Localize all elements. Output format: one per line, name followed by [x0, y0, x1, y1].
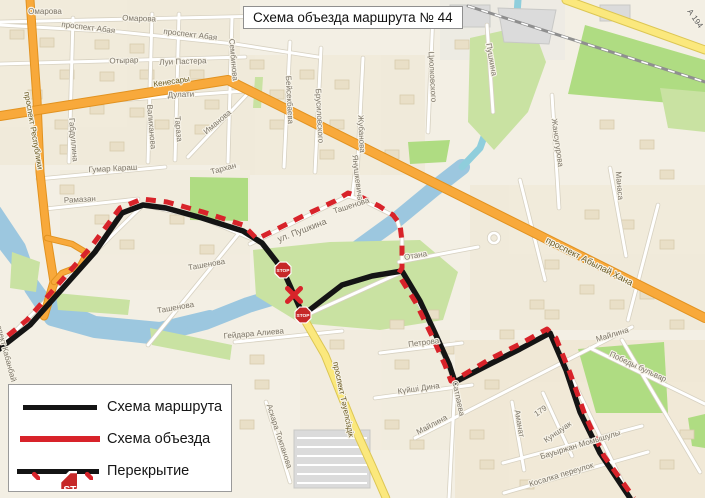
building	[670, 320, 684, 329]
building	[455, 40, 469, 49]
street-label: Луи Пастера	[159, 56, 207, 67]
building	[270, 120, 284, 129]
building	[385, 420, 399, 429]
building	[600, 120, 614, 129]
building	[205, 100, 219, 109]
building	[585, 210, 599, 219]
legend-label-closure: Перекрытие	[107, 463, 189, 479]
building	[500, 330, 514, 339]
building	[240, 420, 254, 429]
building	[660, 170, 674, 179]
building	[330, 340, 344, 349]
park	[408, 140, 450, 164]
building	[335, 80, 349, 89]
map-title-text: Схема объезда маршрута № 44	[253, 10, 453, 25]
building	[545, 310, 559, 319]
building	[400, 95, 414, 104]
building	[610, 300, 624, 309]
stop-sign-icon	[275, 262, 291, 278]
building	[60, 185, 74, 194]
street-label: Отырар	[109, 55, 139, 65]
building	[250, 355, 264, 364]
building	[470, 430, 484, 439]
legend-label-route: Схема маршрута	[107, 399, 222, 415]
closure-x-icon	[22, 462, 40, 480]
building	[480, 460, 494, 469]
building	[640, 140, 654, 149]
legend-label-detour: Схема объезда	[107, 431, 210, 447]
building	[660, 240, 674, 249]
building	[660, 460, 674, 469]
building	[320, 150, 334, 159]
closure-sample	[13, 455, 107, 487]
building	[390, 320, 404, 329]
screenshot-root: { "title": {"text": "Схема объезда маршр…	[0, 0, 705, 498]
building	[545, 260, 559, 269]
building	[40, 38, 54, 47]
legend-item-detour: Схема объезда	[13, 423, 227, 455]
building	[95, 40, 109, 49]
legend-item-route: Схема маршрута	[13, 391, 227, 423]
detour-line-sample	[13, 436, 107, 442]
building	[100, 72, 114, 81]
street-label: Омарова	[122, 13, 157, 23]
closure-x-icon	[75, 462, 93, 480]
building	[255, 380, 269, 389]
building	[395, 360, 409, 369]
building	[580, 285, 594, 294]
street-label: Омарова	[28, 7, 62, 16]
map-title: Схема объезда маршрута № 44	[243, 6, 463, 29]
building	[110, 142, 124, 151]
street-label: Рамазан	[64, 194, 96, 205]
legend-item-closure: Перекрытие	[13, 455, 227, 487]
building	[485, 380, 499, 389]
building	[130, 108, 144, 117]
building	[200, 245, 214, 254]
stop-sign-icon	[295, 307, 311, 323]
street-label: Дулати	[168, 90, 195, 100]
building	[300, 70, 314, 79]
route-line-sample	[13, 405, 107, 410]
building	[395, 60, 409, 69]
building	[120, 240, 134, 249]
legend: Схема маршрута Схема объезда Перекрытие	[8, 384, 232, 492]
building	[170, 215, 184, 224]
building	[55, 120, 69, 129]
building	[10, 30, 24, 39]
building	[410, 440, 424, 449]
building	[130, 44, 144, 53]
building	[155, 120, 169, 129]
building	[190, 70, 204, 79]
stop-sign-icon	[41, 453, 77, 489]
building	[530, 300, 544, 309]
building	[250, 60, 264, 69]
